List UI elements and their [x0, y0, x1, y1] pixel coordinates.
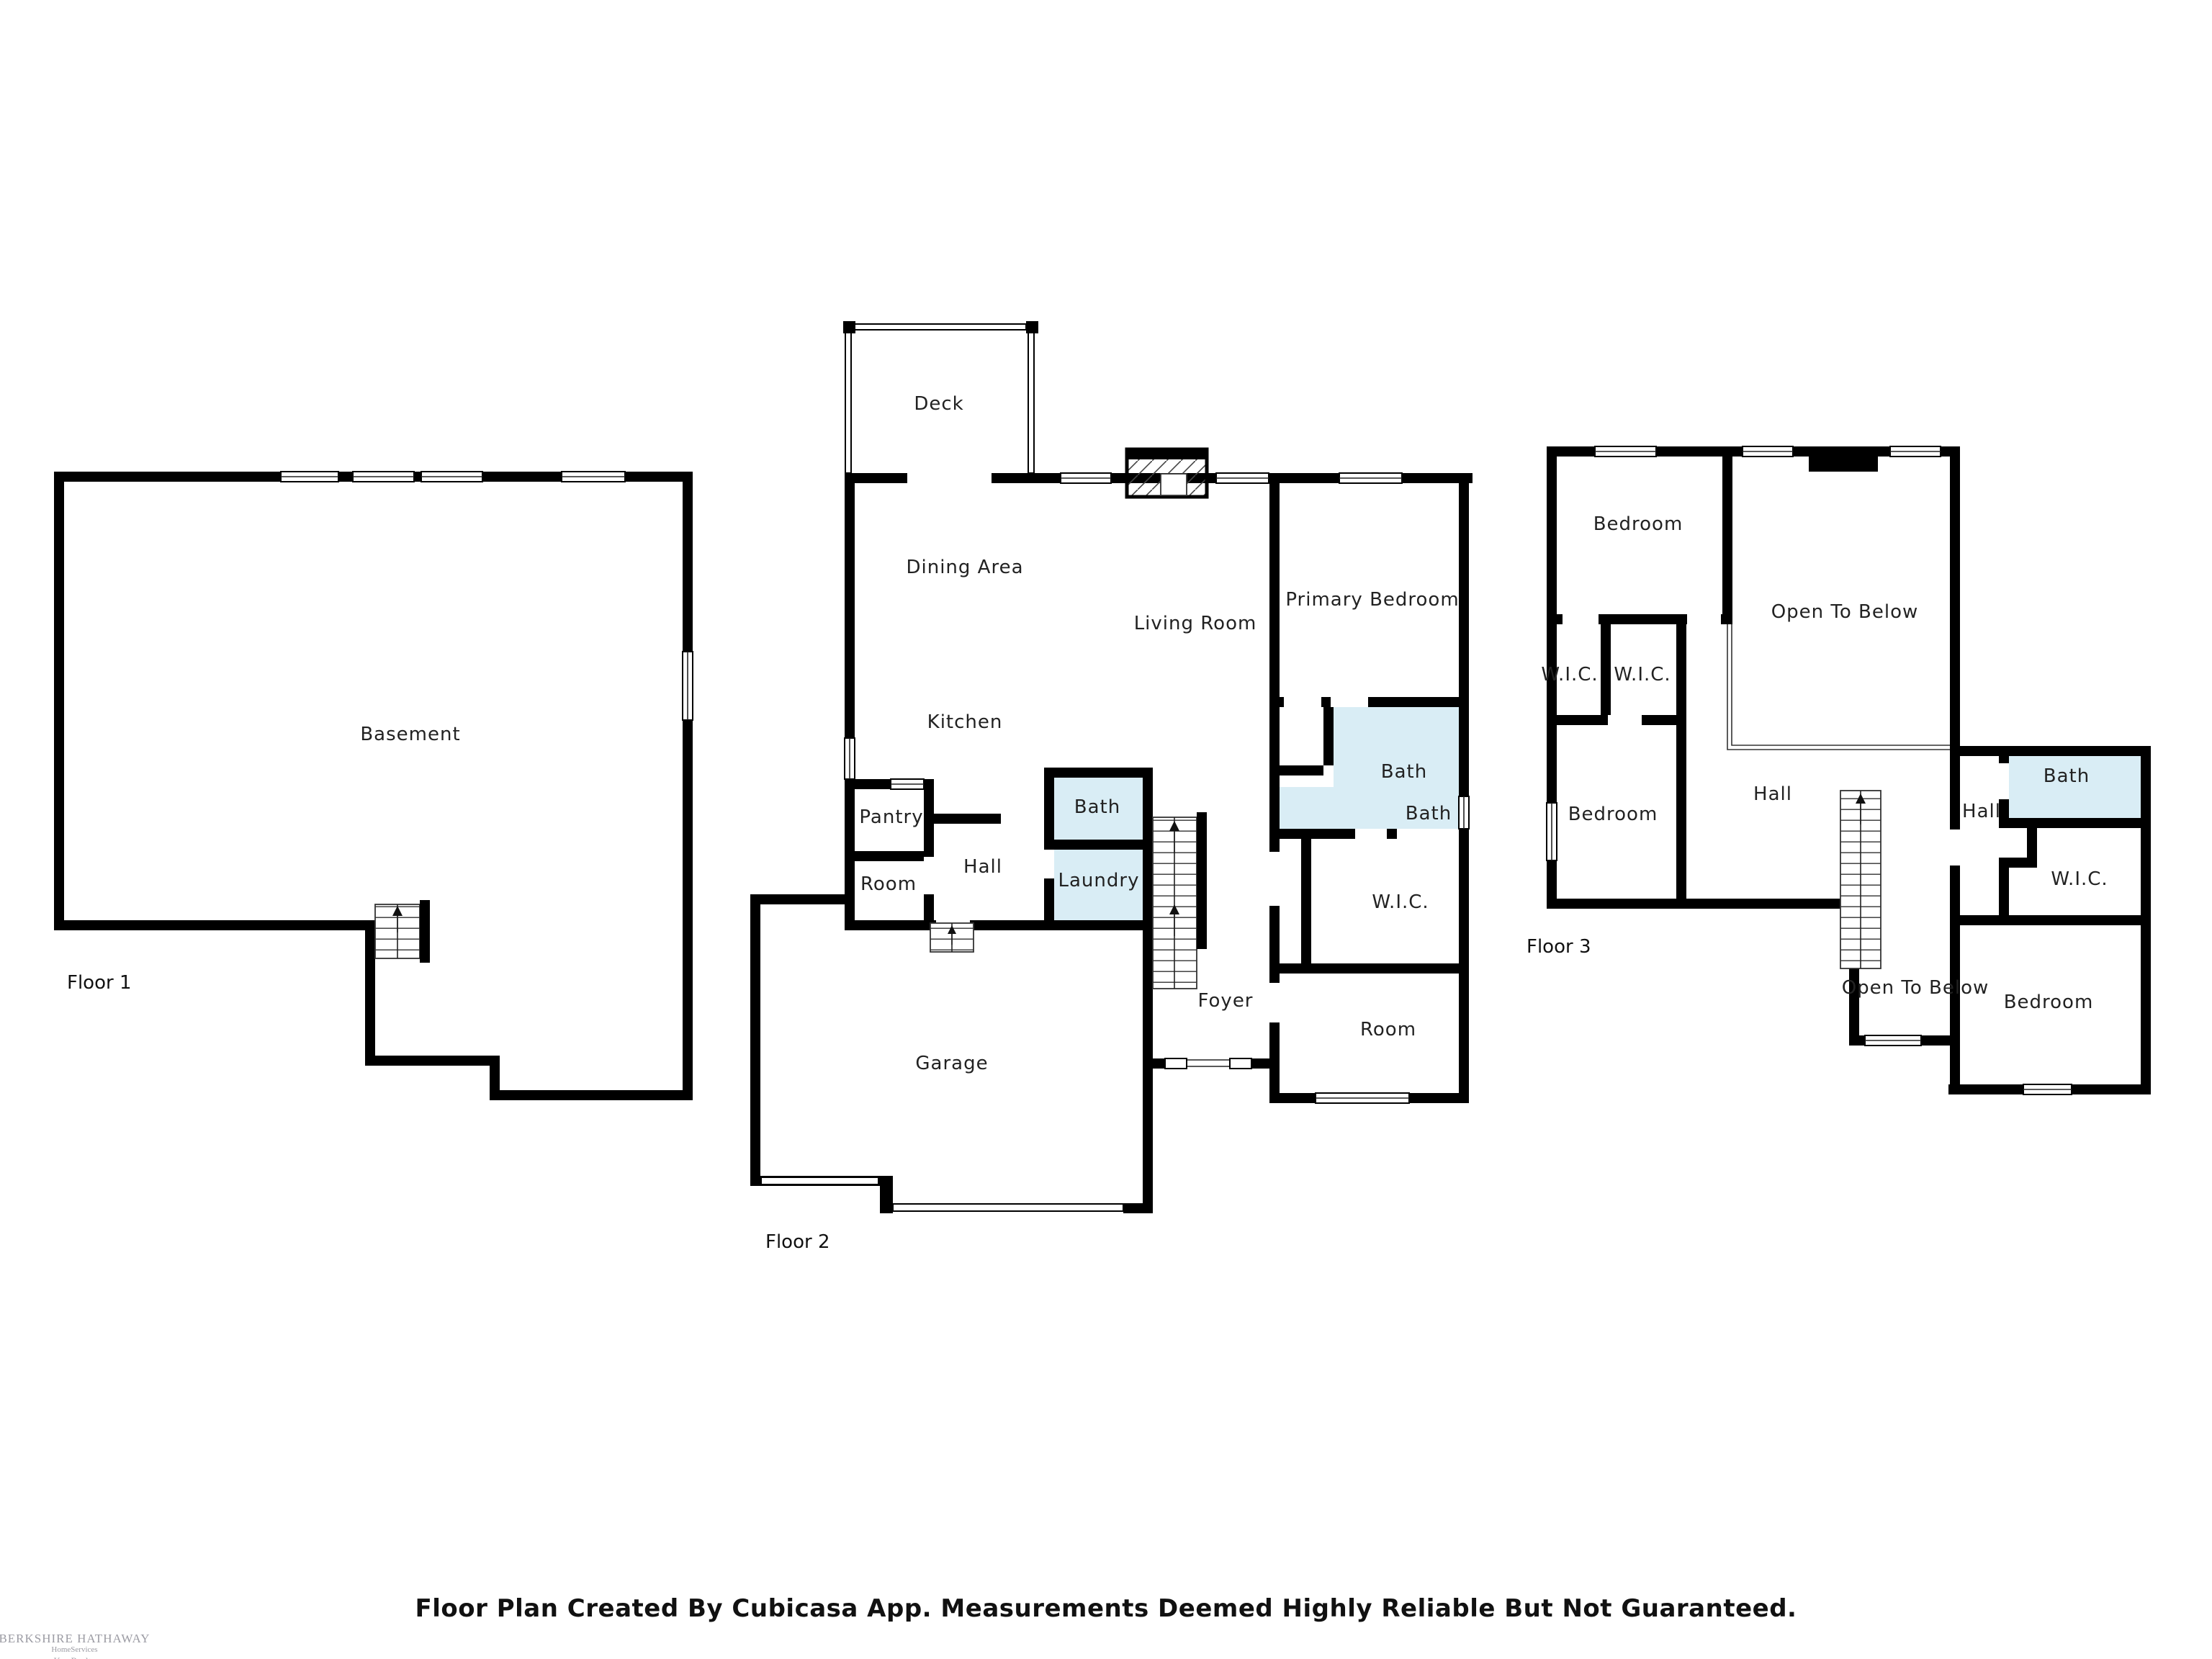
room-label-hall-f2: Hall: [963, 856, 1002, 878]
garage-steps: [930, 923, 974, 952]
room-label-bedroom-br: Bedroom: [2004, 992, 2094, 1013]
floorplan-drawing: [0, 0, 2212, 1659]
room-label-bath-f3: Bath: [2044, 765, 2090, 787]
room-label-living-room: Living Room: [1134, 613, 1257, 634]
disclaimer-text: Floor Plan Created By Cubicasa App. Meas…: [0, 1594, 2212, 1623]
room-label-kitchen: Kitchen: [927, 711, 1003, 733]
room-label-primary-bedroom: Primary Bedroom: [1285, 589, 1459, 611]
room-label-hall-f3: Hall: [1753, 783, 1792, 805]
room-label-room-left: Room: [860, 873, 917, 895]
room-label-bath-small: Bath: [1406, 803, 1452, 824]
room-label-wic-f2: W.I.C.: [1372, 891, 1429, 913]
floor3-windows: [1547, 446, 2072, 1094]
room-label-bedroom-left: Bedroom: [1568, 804, 1658, 825]
room-label-wic-f3-right: W.I.C.: [2051, 868, 2108, 890]
floor2-label: Floor 2: [765, 1231, 830, 1253]
room-label-wic-f3-mid: W.I.C.: [1614, 664, 1671, 685]
floor1-label: Floor 1: [67, 972, 132, 994]
room-label-laundry: Laundry: [1058, 870, 1140, 891]
room-label-bedroom-tl: Bedroom: [1593, 513, 1683, 535]
room-label-room-right: Room: [1360, 1019, 1416, 1040]
brokerage-logo: BERKSHIRE HATHAWAY HomeServices Kee Real…: [0, 1632, 152, 1659]
room-label-garage: Garage: [915, 1053, 988, 1074]
floor3-railing: [1727, 624, 1950, 750]
room-label-open-below-up: Open To Below: [1771, 601, 1919, 623]
floor3-stairs: [1840, 791, 1881, 968]
chimney: [1127, 448, 1207, 497]
room-label-basement: Basement: [360, 724, 460, 745]
brokerage-office: Kee Realty: [0, 1655, 152, 1659]
room-label-hall-f3-small: Hall: [1962, 801, 2001, 822]
room-label-dining-area: Dining Area: [906, 557, 1023, 578]
brokerage-division: HomeServices: [0, 1645, 152, 1654]
floorplan-page: Basement Floor 1 Deck Dining Area Living…: [0, 0, 2212, 1659]
floor1-windows: [281, 472, 693, 720]
room-label-pantry: Pantry: [859, 806, 923, 828]
floor3-label: Floor 3: [1527, 936, 1591, 958]
floor1-walls: [54, 472, 693, 1100]
brokerage-name: BERKSHIRE HATHAWAY: [0, 1632, 152, 1646]
room-label-bath-f2: Bath: [1074, 796, 1120, 818]
room-label-foyer: Foyer: [1197, 990, 1253, 1012]
room-label-wic-f3-left: W.I.C.: [1541, 664, 1598, 685]
room-label-open-below-low: Open To Below: [1842, 977, 1990, 999]
room-label-bath-primary: Bath: [1381, 761, 1427, 783]
room-label-deck: Deck: [914, 393, 963, 415]
floor1-stairs: [375, 900, 430, 963]
floor2-stairs: [1153, 812, 1207, 989]
